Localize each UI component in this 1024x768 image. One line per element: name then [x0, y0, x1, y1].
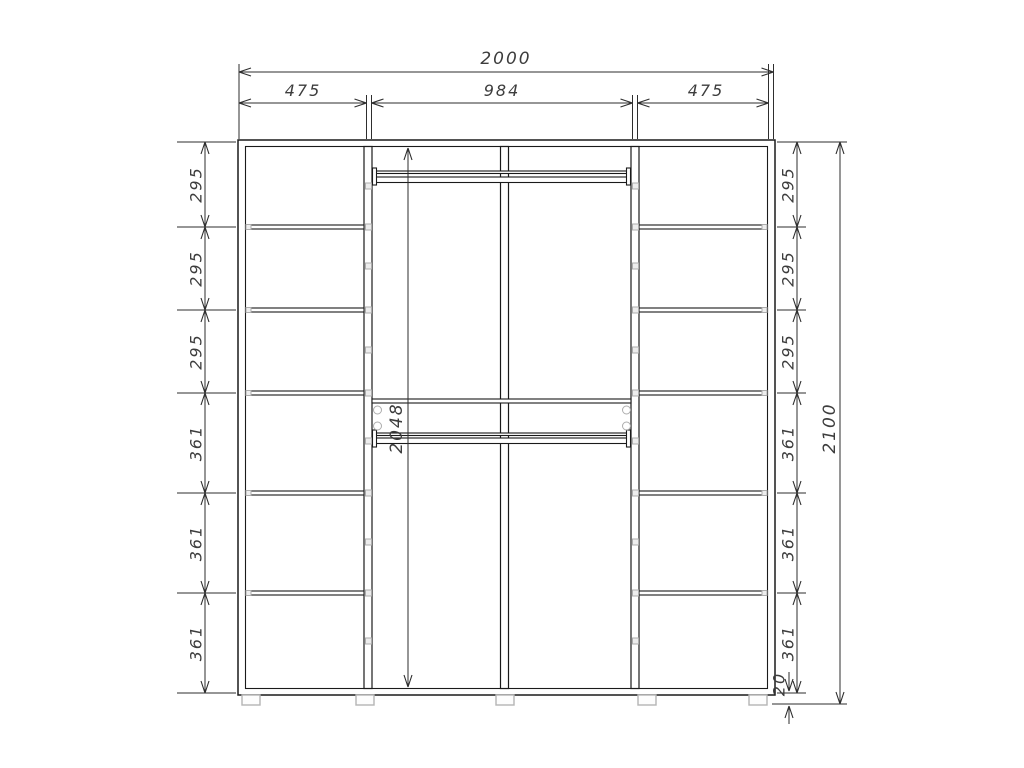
- fitting-square: [633, 590, 639, 596]
- right-shelf-4: [639, 491, 768, 495]
- fitting-square: [762, 225, 767, 230]
- fitting-square: [762, 591, 767, 596]
- fitting-square: [633, 224, 639, 230]
- dim-label-right-3: 295: [779, 333, 798, 370]
- fitting-square: [246, 391, 251, 396]
- fitting-square: [633, 307, 639, 313]
- right-shelf-5: [639, 591, 768, 595]
- fitting-square: [246, 308, 251, 313]
- dim-label-left-3: 295: [187, 333, 206, 370]
- fitting-square: [633, 638, 639, 644]
- mid-rail-bracket-left: [373, 430, 377, 447]
- fitting-square: [246, 491, 251, 496]
- left-shelf-3: [246, 391, 365, 395]
- foot-2: [356, 695, 374, 705]
- left-shelf-4: [246, 491, 365, 495]
- foot-5: [749, 695, 767, 705]
- dim-label-center-interior-height: 2048: [387, 402, 407, 453]
- mid-rail-bracket-right: [627, 430, 631, 447]
- fitting-square: [366, 183, 372, 189]
- top-extension-lines: [239, 64, 774, 139]
- fitting-square: [633, 539, 639, 545]
- fitting-square: [366, 263, 372, 269]
- dim-label-left-2: 295: [187, 250, 206, 287]
- fitting-square: [366, 390, 372, 396]
- foot-4: [638, 695, 656, 705]
- fitting-square: [366, 539, 372, 545]
- dim-label-right-5: 361: [779, 525, 798, 562]
- left-shelf-5: [246, 591, 365, 595]
- dim-label-right-6: 361: [779, 625, 798, 662]
- top-rail-bracket-right: [627, 168, 631, 185]
- fitting-square: [633, 490, 639, 496]
- drawing-canvas: 2000 475 984 475 295 295 295 361 361 361…: [0, 0, 1024, 768]
- dim-label-right-2: 295: [779, 250, 798, 287]
- fitting-square: [246, 225, 251, 230]
- cabinet-structure: [238, 140, 775, 695]
- fitting-square: [633, 390, 639, 396]
- dim-label-left-5: 361: [187, 525, 206, 562]
- dim-label-right-4: 361: [779, 425, 798, 462]
- right-shelf-3: [639, 391, 768, 395]
- fitting-square: [366, 490, 372, 496]
- top-hanging-rail-tube: [375, 177, 628, 183]
- dim-label-left-6: 361: [187, 625, 206, 662]
- dim-label-left-1: 295: [187, 166, 206, 203]
- foot-1: [242, 695, 260, 705]
- right-shelf-1: [639, 225, 768, 229]
- fitting-square: [633, 183, 639, 189]
- dim-label-right-section: 475: [688, 81, 725, 100]
- right-shelf-2: [639, 308, 768, 312]
- mid-hanging-rail-tube: [375, 438, 628, 444]
- mid-hanging-rail-bar: [375, 433, 628, 436]
- fitting-square: [246, 591, 251, 596]
- left-shelf-1: [246, 225, 365, 229]
- fitting-square: [366, 638, 372, 644]
- top-hanging-rail-bar: [375, 171, 628, 174]
- fitting-square: [762, 391, 767, 396]
- fitting-square: [366, 590, 372, 596]
- fitting-square: [633, 263, 639, 269]
- dim-label-right-1: 295: [779, 166, 798, 203]
- fitting-square: [366, 307, 372, 313]
- dim-label-overall-width: 2000: [480, 49, 531, 69]
- fitting-square: [366, 347, 372, 353]
- fitting-square: [762, 308, 767, 313]
- dim-label-overall-height: 2100: [820, 402, 840, 453]
- dim-label-left-section: 475: [285, 81, 322, 100]
- fitting-square: [633, 438, 639, 444]
- left-shelf-2: [246, 308, 365, 312]
- divider-panel-center: [501, 147, 509, 689]
- fitting-square: [366, 438, 372, 444]
- wardrobe-dimension-drawing: 2000 475 984 475 295 295 295 361 361 361…: [0, 0, 1024, 768]
- foot-3: [496, 695, 514, 705]
- cabinet-feet: [242, 695, 767, 705]
- dim-label-center-section: 984: [484, 81, 521, 100]
- dim-label-base-height: 20: [770, 672, 789, 696]
- fitting-square: [633, 347, 639, 353]
- center-fixed-shelf: [372, 399, 631, 403]
- left-extension-lines: [177, 142, 236, 693]
- dim-label-left-4: 361: [187, 425, 206, 462]
- fitting-square: [762, 491, 767, 496]
- fitting-square: [366, 224, 372, 230]
- top-rail-bracket-left: [373, 168, 377, 185]
